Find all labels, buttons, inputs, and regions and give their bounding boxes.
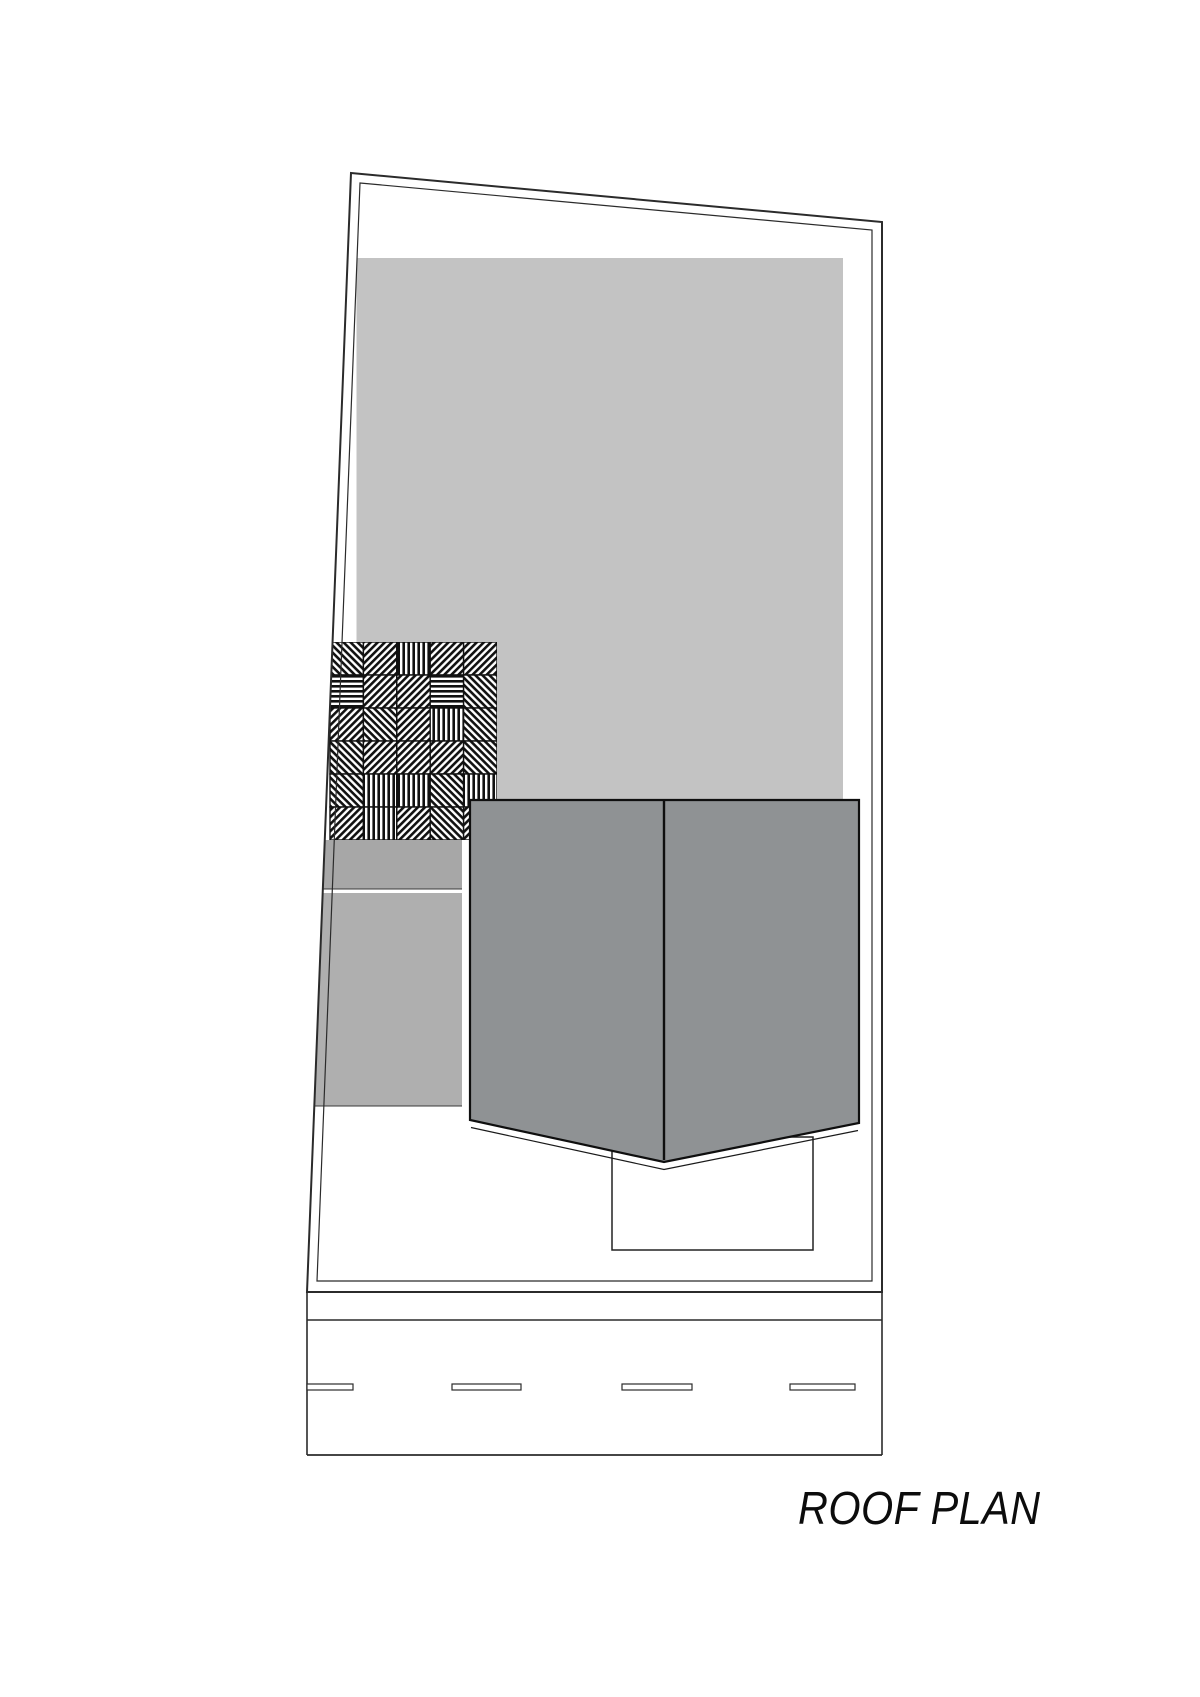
hatch-cell bbox=[430, 675, 463, 708]
hatch-cell bbox=[430, 807, 463, 840]
terrace-lower bbox=[314, 893, 462, 1106]
road-centerline-dash bbox=[452, 1384, 521, 1390]
hatch-cell bbox=[397, 741, 430, 774]
terrace-upper bbox=[323, 840, 462, 889]
hatch-cell bbox=[330, 774, 363, 807]
hatch-cell bbox=[363, 741, 396, 774]
road-centerline-dash bbox=[790, 1384, 855, 1390]
road-centerline bbox=[307, 1384, 855, 1390]
hatch-cell bbox=[430, 741, 463, 774]
hatch-cell bbox=[430, 708, 463, 741]
hatch-cell bbox=[397, 807, 430, 840]
hatch-cell bbox=[397, 708, 430, 741]
hatch-cell bbox=[363, 807, 396, 840]
hatch-cell bbox=[363, 708, 396, 741]
hatch-cell bbox=[464, 708, 497, 741]
hatch-cell bbox=[363, 642, 396, 675]
plan-title: ROOF PLAN bbox=[798, 1483, 1041, 1535]
drawing-sheet: ROOF PLAN bbox=[0, 0, 1200, 1697]
hatch-cell bbox=[464, 675, 497, 708]
road-centerline-dash bbox=[307, 1384, 353, 1390]
hatch-cell bbox=[464, 741, 497, 774]
hatch-cell bbox=[397, 675, 430, 708]
hatch-cell bbox=[430, 642, 463, 675]
hatch-cell bbox=[363, 675, 396, 708]
hatch-cell bbox=[330, 708, 363, 741]
hatch-cell bbox=[430, 774, 463, 807]
hatch-cell bbox=[464, 642, 497, 675]
road-centerline-dash bbox=[622, 1384, 692, 1390]
hatch-cell bbox=[397, 642, 430, 675]
hatch-cell bbox=[397, 774, 430, 807]
hatch-cell bbox=[330, 741, 363, 774]
roof-plan-drawing: ROOF PLAN bbox=[0, 0, 1200, 1697]
hatch-cell bbox=[330, 642, 363, 675]
hatch-cell bbox=[363, 774, 396, 807]
hatch-cell bbox=[330, 675, 363, 708]
road-band bbox=[307, 1292, 882, 1455]
